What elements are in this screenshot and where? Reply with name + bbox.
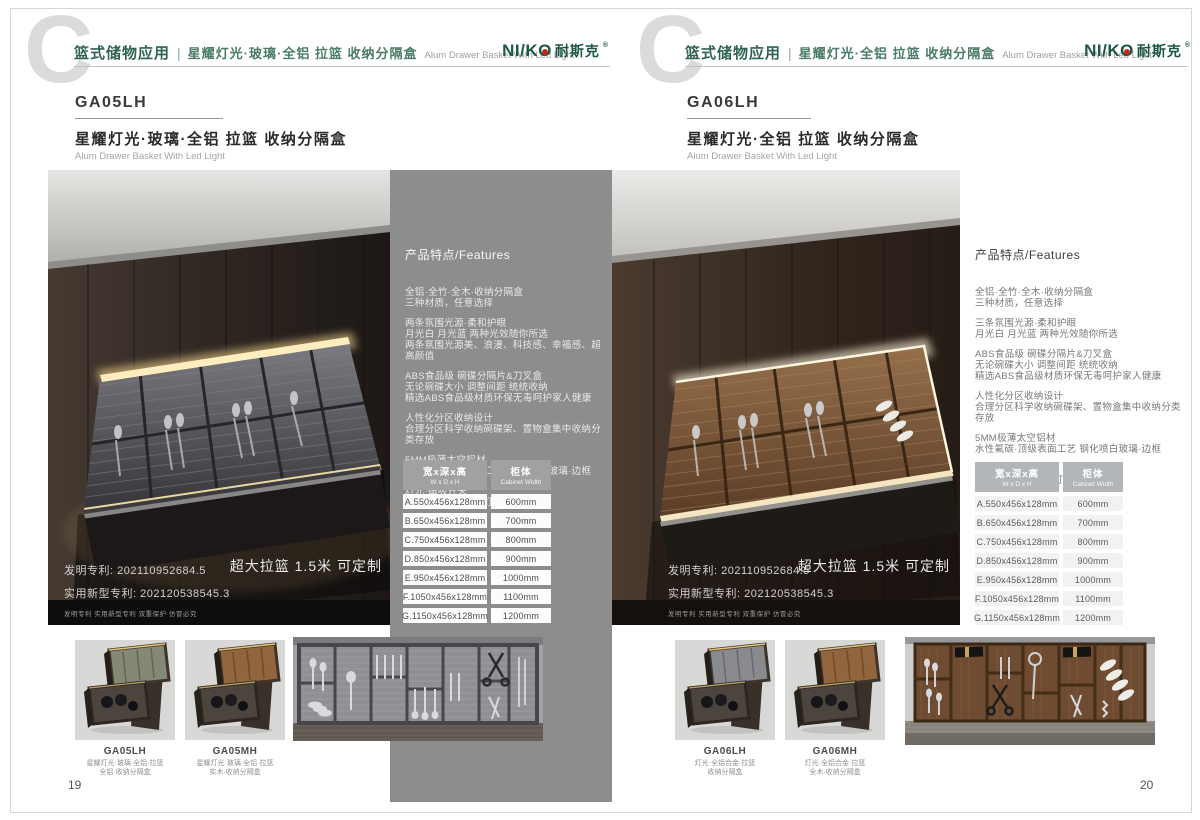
thumb-photo <box>785 640 885 740</box>
spec-cell-size: E.950x456x128mm <box>403 570 487 585</box>
thumb-caption: 灯光·全铝合金·拉篮 全木·收纳分隔盒 <box>785 759 885 777</box>
product-code: GA06LH <box>687 94 919 112</box>
spec-cell-cabinet: 600mm <box>1063 496 1123 511</box>
brand-logo-latin: NI/KO <box>1084 41 1134 61</box>
spec-cell-cabinet: 1000mm <box>491 570 551 585</box>
thumb-photo <box>675 640 775 740</box>
registered-mark: ® <box>1185 42 1190 49</box>
thumb-code: GA05MH <box>185 746 285 757</box>
spec-cell-cabinet: 700mm <box>1063 515 1123 530</box>
brand-logo: NI/KO 耐斯克 ® <box>502 41 608 61</box>
size-badge: 超大拉篮 1.5米 可定制 <box>790 556 950 576</box>
catalog-spread: C 篮式储物应用 | 星耀灯光·玻璃·全铝 拉篮 收纳分隔盒 Alum Draw… <box>0 0 1200 820</box>
header-product-line: 星耀灯光·全铝 拉篮 收纳分隔盒 <box>799 43 996 62</box>
header-rule <box>74 66 610 67</box>
spec-table: 宽x深x高W x D x H 柜体Cabinet Width A.550x456… <box>975 462 1123 625</box>
feature-group: 人性化分区收纳设计 合理分区科学收纳碗碟架、置物盒集中收纳分类存放 <box>405 413 605 446</box>
feature-group: 两条氛围光源·柔和护眼 月光白 月光蓝 两种光效随你所选 两条氛围光源美、浪漫、… <box>405 318 605 362</box>
page-header: 篮式储物应用 | 星耀灯光·玻璃·全铝 拉篮 收纳分隔盒 Alum Drawer… <box>74 42 575 63</box>
page-header: 篮式储物应用 | 星耀灯光·全铝 拉篮 收纳分隔盒 Alum Drawer Ba… <box>685 42 1152 63</box>
features-title: 产品特点/Features <box>405 246 605 263</box>
spec-header-size: 宽x深x高W x D x H <box>975 462 1059 492</box>
spec-cell-size: B.650x456x128mm <box>975 515 1059 530</box>
header-separator: | <box>177 45 181 61</box>
patent-line: 发明专利: 202110952684.5 <box>64 562 230 578</box>
spec-cell-size: E.950x456x128mm <box>975 572 1059 587</box>
patent-line: 实用新型专利: 202120538545.3 <box>64 585 230 601</box>
brand-logo-latin: NI/KO <box>502 41 552 61</box>
features-title: 产品特点/Features <box>975 246 1187 263</box>
spec-cell-size: A.550x456x128mm <box>403 494 487 509</box>
thumb-code: GA06MH <box>785 746 885 757</box>
product-subtitle: Alum Drawer Basket With Led Light <box>687 151 919 162</box>
brand-logo-cjk: 耐斯克 <box>1137 41 1182 61</box>
product-subtitle: Alum Drawer Basket With Led Light <box>75 151 347 162</box>
header-category: 篮式储物应用 <box>685 42 781 63</box>
thumb-caption: 星耀灯光·玻璃·全铝·拉篮 全铝·收纳分隔盒 <box>75 759 175 777</box>
page-left: C 篮式储物应用 | 星耀灯光·玻璃·全铝 拉篮 收纳分隔盒 Alum Draw… <box>0 0 612 820</box>
spec-cell-cabinet: 600mm <box>491 494 551 509</box>
title-rule <box>687 118 811 119</box>
feature-group: 5MM极薄太空铝材 水性氟碳·顶级表面工艺 钢化喷白玻璃·边框 <box>975 433 1187 455</box>
spec-cell-cabinet: 1200mm <box>1063 610 1123 625</box>
size-badge: 超大拉篮 1.5米 可定制 <box>226 556 382 576</box>
feature-group: 全铝·全竹·全木·收纳分隔盒 三种材质，任意选择 <box>405 287 605 309</box>
page-number: 20 <box>1140 778 1153 792</box>
spec-cell-size: D.850x456x128mm <box>403 551 487 566</box>
spec-cell-size: D.850x456x128mm <box>975 553 1059 568</box>
spec-cell-cabinet: 1100mm <box>1063 591 1123 606</box>
spec-table: 宽x深x高W x D x H 柜体Cabinet Width A.550x456… <box>403 460 551 623</box>
header-separator: | <box>788 45 792 61</box>
spec-cell-size: C.750x456x128mm <box>403 532 487 547</box>
organizer-topview-photo <box>905 637 1155 745</box>
thumbnail-ga05lh: GA05LH 星耀灯光·玻璃·全铝·拉篮 全铝·收纳分隔盒 <box>75 640 175 777</box>
brand-logo-o: O <box>538 41 552 61</box>
features-panel: 产品特点/Features 全铝·全竹·全木·收纳分隔盒 三种材质，任意选择 三… <box>975 246 1187 495</box>
feature-group: ABS食品级 碗碟分隔片&刀叉盒 无论碗碟大小 调整间距 统统收纳 精选ABS食… <box>975 349 1187 382</box>
title-rule <box>75 118 223 119</box>
spec-cell-cabinet: 700mm <box>491 513 551 528</box>
feature-group: 三条氛围光源·柔和护眼 月光白 月光蓝 两种光效随你所选 <box>975 318 1187 340</box>
thumbnail-ga06mh: GA06MH 灯光·全铝合金·拉篮 全木·收纳分隔盒 <box>785 640 885 777</box>
patent-line: 实用新型专利: 202120538545.3 <box>668 585 834 601</box>
spec-cell-size: F.1050x456x128mm <box>403 589 487 604</box>
product-code: GA05LH <box>75 94 347 112</box>
patent-note: 发明专利 实用新型专利 双重保护 仿冒必究 <box>64 608 230 618</box>
product-title-block: GA05LH 星耀灯光·玻璃·全铝 拉篮 收纳分隔盒 Alum Drawer B… <box>75 94 347 162</box>
spec-header-cabinet: 柜体Cabinet Width <box>491 460 551 490</box>
spec-cell-cabinet: 900mm <box>491 551 551 566</box>
header-product-line: 星耀灯光·玻璃·全铝 拉篮 收纳分隔盒 <box>188 43 418 62</box>
spec-cell-size: A.550x456x128mm <box>975 496 1059 511</box>
thumb-code: GA06LH <box>675 746 775 757</box>
thumb-photo <box>75 640 175 740</box>
feature-group: 全铝·全竹·全木·收纳分隔盒 三种材质，任意选择 <box>975 287 1187 309</box>
feature-group: ABS食品级 碗碟分隔片&刀叉盒 无论碗碟大小 调整间距 统统收纳 精选ABS食… <box>405 371 605 404</box>
thumb-photo <box>185 640 285 740</box>
header-rule <box>685 66 1188 67</box>
spec-header-cabinet: 柜体Cabinet Width <box>1063 462 1123 492</box>
product-title-block: GA06LH 星耀灯光·全铝 拉篮 收纳分隔盒 Alum Drawer Bask… <box>687 94 919 162</box>
thumbnail-ga05mh: GA05MH 星耀灯光·玻璃·全铝·拉篮 实木·收纳分隔盒 <box>185 640 285 777</box>
thumb-caption: 灯光·全铝合金·拉篮 收纳分隔盒 <box>675 759 775 777</box>
page-right: C 篮式储物应用 | 星耀灯光·全铝 拉篮 收纳分隔盒 Alum Drawer … <box>612 0 1200 820</box>
spec-cell-cabinet: 1200mm <box>491 608 551 623</box>
spec-cell-size: C.750x456x128mm <box>975 534 1059 549</box>
organizer-topview-photo <box>293 637 543 741</box>
thumb-caption: 星耀灯光·玻璃·全铝·拉篮 实木·收纳分隔盒 <box>185 759 285 777</box>
spec-cell-size: G.1150x456x128mm <box>403 608 487 623</box>
registered-mark: ® <box>603 42 608 49</box>
thumbnail-ga06lh: GA06LH 灯光·全铝合金·拉篮 收纳分隔盒 <box>675 640 775 777</box>
spec-cell-cabinet: 800mm <box>491 532 551 547</box>
patent-block: 发明专利: 202110952684.5 实用新型专利: 20212053854… <box>64 562 230 618</box>
spec-cell-cabinet: 800mm <box>1063 534 1123 549</box>
page-number: 19 <box>68 778 81 792</box>
product-title: 星耀灯光·全铝 拉篮 收纳分隔盒 <box>687 128 919 149</box>
spec-cell-size: G.1150x456x128mm <box>975 610 1059 625</box>
brand-logo-cjk: 耐斯克 <box>555 41 600 61</box>
spec-cell-cabinet: 1000mm <box>1063 572 1123 587</box>
brand-logo-o: O <box>1120 41 1134 61</box>
spec-header-size: 宽x深x高W x D x H <box>403 460 487 490</box>
brand-logo: NI/KO 耐斯克 ® <box>1084 41 1190 61</box>
spec-cell-cabinet: 900mm <box>1063 553 1123 568</box>
patent-note: 发明专利 实用新型专利 双重保护 仿冒必究 <box>668 608 834 618</box>
header-category: 篮式储物应用 <box>74 42 170 63</box>
spec-cell-size: B.650x456x128mm <box>403 513 487 528</box>
thumb-code: GA05LH <box>75 746 175 757</box>
spec-cell-size: F.1050x456x128mm <box>975 591 1059 606</box>
feature-group: 人性化分区收纳设计 合理分区科学收纳碗碟架、置物盒集中收纳分类存放 <box>975 391 1187 424</box>
spec-cell-cabinet: 1100mm <box>491 589 551 604</box>
product-title: 星耀灯光·玻璃·全铝 拉篮 收纳分隔盒 <box>75 128 347 149</box>
